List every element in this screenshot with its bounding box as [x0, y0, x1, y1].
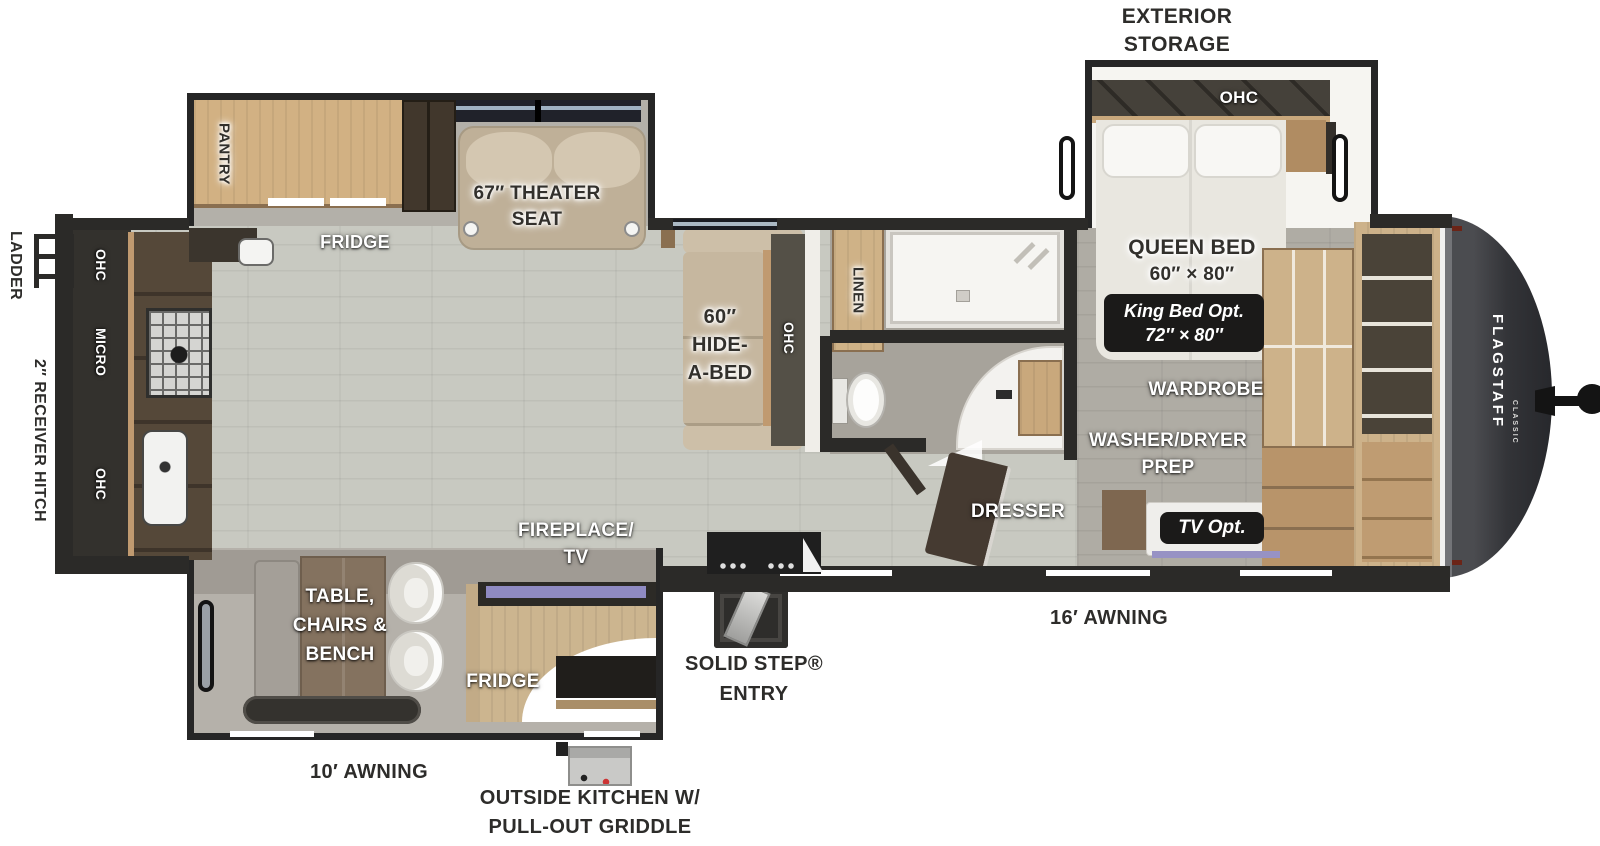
dinette-window [198, 600, 214, 692]
slide-baggage-strip-1 [230, 731, 314, 737]
dinette-label-line3: BENCH [305, 640, 374, 669]
theater-seat-label-line1: 67″ THEATER [473, 181, 600, 207]
hitch-jack [1535, 386, 1555, 416]
hitch-knob-icon [1577, 384, 1600, 414]
kitchen-micro-label: MICRO [88, 304, 114, 400]
baggage-door-strip-2 [1046, 570, 1150, 576]
washer-dryer-label-line1: WASHER/DRYER [1089, 427, 1247, 454]
exterior-storage-line1: EXTERIOR [1122, 3, 1233, 31]
wardrobe-label: WARDROBE [1120, 376, 1292, 404]
fridge-label: FRIDGE [305, 228, 405, 256]
front-closet-rods [1362, 234, 1432, 434]
pillow-left [1102, 124, 1190, 178]
vanity-faucet-icon [996, 390, 1012, 399]
corner-sink-icon [238, 238, 274, 266]
cap-latch-top [1452, 226, 1462, 231]
king-bed-option-line2: 72″ × 80″ [1145, 323, 1223, 347]
dinette-label-line2: CHAIRS & [293, 611, 387, 640]
outside-kitchen-label: OUTSIDE KITCHEN W/ PULL-OUT GRIDDLE [448, 784, 732, 842]
fireplace-side-panel [466, 584, 478, 722]
fireplace-insert [556, 656, 656, 698]
fireplace-label: FIREPLACE/ TV [488, 516, 664, 572]
top-wall-front [1370, 214, 1452, 228]
fireplace-tv-screen [486, 586, 646, 598]
outside-fridge-label: FRIDGE [448, 668, 558, 696]
king-bed-option-badge: King Bed Opt. 72″ × 80″ [1104, 294, 1264, 352]
kitchen-ohc-lower-label: OHC [88, 446, 114, 522]
bath-left-wall [820, 336, 832, 452]
kitchen-sink-icon [142, 430, 188, 526]
dinette-label-line1: TABLE, [306, 582, 375, 611]
shower-drain-icon [956, 290, 970, 302]
slide-window-strip [437, 100, 641, 122]
hall-wall-white [805, 228, 820, 452]
bedroom-ohc-label: OHC [1206, 82, 1272, 114]
brand-series-label: CLASSIC [1511, 400, 1518, 480]
kitchen-ohc-upper-label: OHC [88, 236, 114, 294]
queen-bed-label: QUEEN BED [1082, 234, 1302, 262]
bath-right-wall [1064, 222, 1077, 460]
bedroom-corner-cabinet [1286, 120, 1326, 172]
hide-a-bed-label: 60″ HIDE- A-BED [656, 302, 784, 388]
counter-edge-strip-2 [330, 198, 386, 206]
outside-kitchen-line1: OUTSIDE KITCHEN W/ [480, 784, 701, 813]
toilet-icon [846, 372, 886, 428]
ladder-icon [34, 234, 74, 288]
hitch-bar [1553, 396, 1579, 406]
dinette-rug [243, 696, 421, 724]
floorplan-canvas: FLAGSTAFF CLASSIC OHC MICRO OHC PANTRY 6… [0, 0, 1600, 846]
tv-screen-strip [1152, 551, 1280, 558]
receiver-hitch-label: 2″ RECEIVER HITCH [24, 300, 54, 580]
dinette-label: TABLE, CHAIRS & BENCH [262, 582, 418, 668]
bottom-wall-rear [55, 556, 189, 574]
hide-a-bed-label-line2: HIDE- [692, 331, 748, 359]
fireplace-label-line1: FIREPLACE/ [518, 517, 634, 544]
griddle-box [568, 746, 632, 786]
hab-wall-window [673, 219, 777, 230]
pillow-right [1194, 124, 1282, 178]
hab-wood-wedge [661, 228, 675, 248]
exterior-storage-label: EXTERIOR STORAGE [1077, 2, 1277, 60]
linen-label: LINEN [841, 238, 875, 342]
outside-kitchen-line2: PULL-OUT GRIDDLE [488, 813, 691, 842]
vanity-medicine-cabinet [1018, 360, 1062, 436]
fireplace-shelf [556, 700, 656, 709]
dresser-label: DRESSER [948, 498, 1088, 526]
pantry-label: PANTRY [208, 102, 240, 206]
awning-16-label: 16′ AWNING [1018, 604, 1200, 632]
griddle-bracket [556, 742, 568, 756]
solid-step-entry-label: SOLID STEP® ENTRY [663, 648, 845, 710]
exterior-storage-line2: STORAGE [1124, 31, 1230, 59]
counter-edge-strip-1 [268, 198, 324, 206]
queen-bed-size-label: 60″ × 80″ [1082, 262, 1302, 288]
cap-latch-bottom [1452, 560, 1462, 565]
top-wall-rear [55, 218, 189, 230]
shower [886, 228, 1064, 328]
fireplace-label-line2: TV [564, 544, 589, 571]
bedroom-window-right [1332, 134, 1348, 202]
front-closet-drawers [1362, 442, 1432, 562]
washer-dryer-label: WASHER/DRYER PREP [1078, 426, 1258, 482]
tv-stand-wood [1102, 490, 1146, 550]
theater-seat-label-line2: SEAT [512, 207, 562, 233]
bath-bottom-wall [830, 438, 926, 452]
king-bed-option-line1: King Bed Opt. [1124, 299, 1244, 323]
awning-10-label: 10′ AWNING [283, 758, 455, 786]
cooktop-icon [146, 308, 212, 398]
theater-seat-label: 67″ THEATER SEAT [437, 180, 637, 234]
slide-baggage-strip-2 [584, 731, 640, 737]
washer-dryer-label-line2: PREP [1142, 454, 1195, 481]
hide-a-bed-label-line1: 60″ [704, 303, 737, 331]
brand-logo: FLAGSTAFF [1489, 314, 1506, 504]
solid-step-line1: SOLID STEP® [685, 649, 823, 679]
tv-option-badge: TV Opt. [1160, 512, 1264, 544]
baggage-door-strip-3 [1240, 570, 1332, 576]
solid-step-line2: ENTRY [719, 679, 788, 709]
hide-a-bed-label-line3: A-BED [688, 359, 753, 387]
bedroom-window-left [1059, 136, 1075, 200]
